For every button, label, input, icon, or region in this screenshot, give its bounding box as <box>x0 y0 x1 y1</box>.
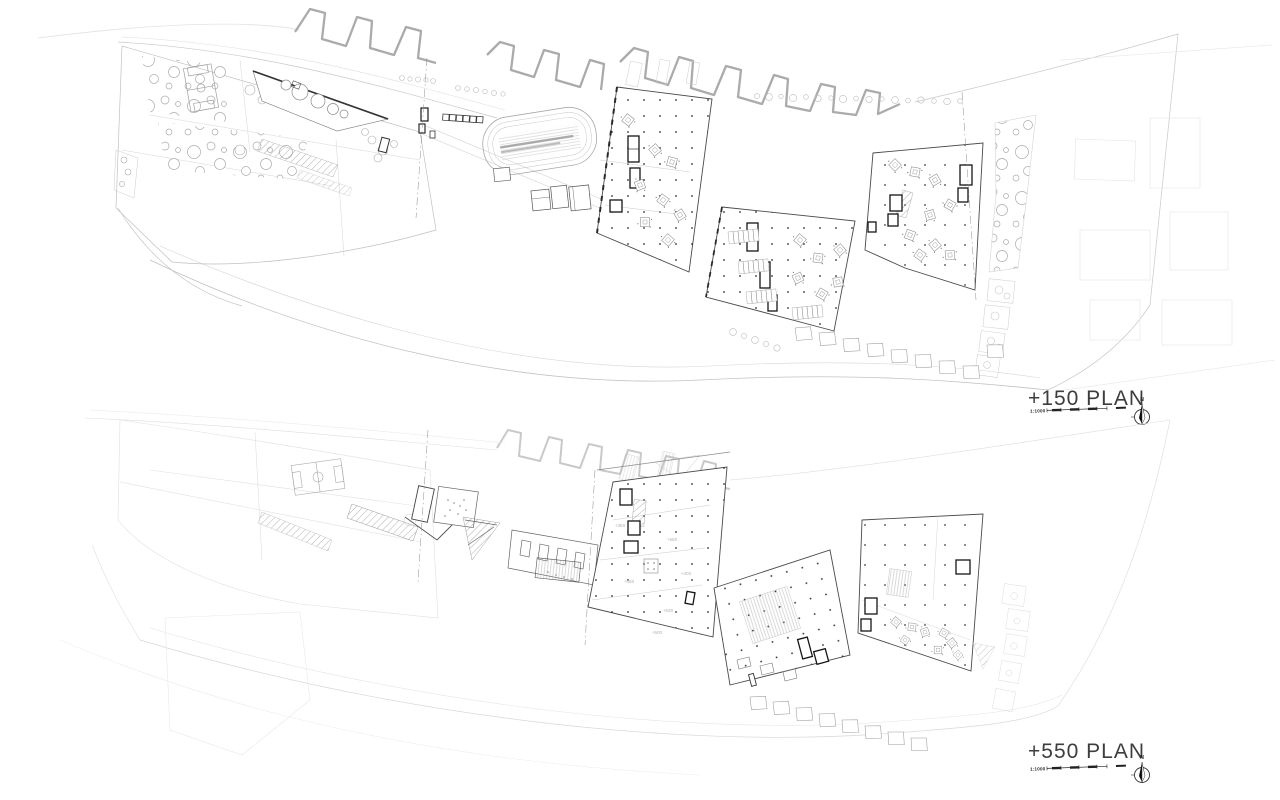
svg-text:+400: +400 <box>681 571 692 576</box>
building-c <box>865 143 983 290</box>
terrace-row <box>793 324 1006 382</box>
svg-text:+350: +350 <box>615 523 626 528</box>
north-label: N <box>1140 755 1144 761</box>
tree-strip <box>992 584 1030 712</box>
building-b3 <box>858 514 995 671</box>
scale-bar-550: 1:1000 <box>1030 763 1126 771</box>
slope-hatch <box>973 643 995 669</box>
north-label: N <box>1140 397 1144 403</box>
svg-text:+630: +630 <box>663 608 674 613</box>
context-line <box>38 24 300 38</box>
plan-150: +150 PLAN 1:1000 N <box>38 9 1275 425</box>
wedge-building <box>253 71 388 131</box>
section-lines <box>418 430 595 645</box>
plan-550-title: +550 PLAN <box>1028 740 1145 763</box>
tree-strip <box>975 115 1036 378</box>
building-b2 <box>714 550 850 686</box>
terrace-row <box>748 693 931 754</box>
svg-text:+500: +500 <box>652 630 663 635</box>
drawing-sheet: +150 PLAN 1:1000 N <box>0 0 1280 800</box>
zigzag-retaining-wall <box>295 9 900 115</box>
plan-150-title: +150 PLAN <box>1028 387 1145 410</box>
building-b <box>706 207 855 331</box>
svg-text:+550: +550 <box>667 537 678 542</box>
scale-ratio-label: 1:1000 <box>1030 408 1046 414</box>
service-cores <box>419 108 483 138</box>
svg-text:+450: +450 <box>624 579 635 584</box>
running-track <box>479 103 601 178</box>
plan-550: +350 +550 +400 +450 +630 +500 <box>60 410 1170 783</box>
pavilion-rooms <box>412 486 500 560</box>
scale-ratio-label: 1:1000 <box>1030 766 1046 772</box>
road-tree-row <box>730 329 781 352</box>
studio-rooms <box>508 530 598 585</box>
site-plan-drawing: +150 PLAN 1:1000 N <box>0 0 1280 800</box>
city-context <box>1060 45 1275 390</box>
building-a <box>597 87 712 272</box>
building-b1: +350 +550 +400 +450 +630 +500 <box>588 467 727 637</box>
